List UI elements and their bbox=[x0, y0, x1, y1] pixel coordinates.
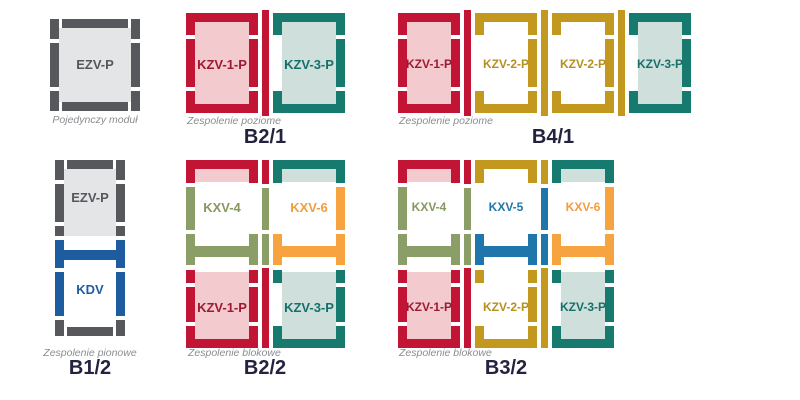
frame-stub bbox=[336, 270, 345, 283]
frame-stub bbox=[249, 169, 258, 183]
frame-stub bbox=[398, 169, 407, 183]
frame-stub bbox=[552, 169, 561, 183]
junction-bar bbox=[464, 188, 471, 230]
frame-bar bbox=[62, 19, 128, 28]
frame-stub bbox=[273, 22, 282, 35]
frame-stub bbox=[605, 169, 614, 183]
module-fill bbox=[195, 169, 249, 182]
frame-stub bbox=[249, 22, 258, 35]
module-label: KXV-6 bbox=[273, 200, 345, 215]
divider-bar bbox=[464, 268, 471, 348]
frame-stub bbox=[50, 19, 59, 39]
frame-stub bbox=[451, 270, 460, 283]
frame-stub bbox=[605, 270, 614, 283]
frame-stub bbox=[605, 91, 614, 104]
frame-stub bbox=[528, 91, 537, 104]
frame-bar bbox=[629, 104, 691, 113]
frame-stub bbox=[336, 91, 345, 104]
frame-stub bbox=[186, 22, 195, 35]
frame-stub bbox=[552, 326, 561, 339]
group-b22: KXV-4 KXV-6 KZV-1-P KZV-3-P bbox=[186, 160, 345, 348]
frame-stub bbox=[451, 91, 460, 104]
frame-stub bbox=[398, 326, 407, 339]
frame-bar bbox=[398, 104, 460, 113]
group-badge: B2/1 bbox=[215, 126, 315, 149]
connector-crossbar bbox=[552, 246, 614, 257]
junction-stub bbox=[541, 234, 548, 265]
module-label: KZV-2-P bbox=[471, 57, 541, 71]
module-label: KZV-3-P bbox=[625, 57, 695, 71]
group-badge: B1/2 bbox=[50, 357, 130, 380]
frame-stub bbox=[528, 270, 537, 283]
frame-bar bbox=[475, 160, 537, 169]
module-label: KXV-5 bbox=[475, 200, 537, 214]
frame-bar bbox=[186, 13, 258, 22]
frame-stub bbox=[131, 19, 140, 39]
module-label: KZV-1-P bbox=[394, 57, 464, 71]
junction-stub bbox=[262, 234, 269, 265]
group-b41: KZV-1-P KZV-2-P KZV-2-P KZV-3-P bbox=[398, 13, 691, 113]
frame-stub bbox=[116, 308, 125, 316]
frame-stub bbox=[273, 326, 282, 339]
group-caption: Pojedynczy moduł bbox=[30, 114, 160, 126]
frame-stub bbox=[336, 22, 345, 35]
frame-stub bbox=[475, 169, 484, 183]
frame-stub bbox=[336, 326, 345, 339]
module-label: KZV-1-P bbox=[186, 300, 258, 315]
frame-stub bbox=[451, 326, 460, 339]
divider-bar bbox=[618, 10, 625, 116]
connector-crossbar bbox=[273, 246, 345, 257]
module-fill bbox=[407, 169, 451, 182]
module-label: KXV-4 bbox=[398, 200, 460, 214]
group-b32: KXV-4 KXV-5 KXV-6 KZV-1 bbox=[398, 160, 614, 348]
group-badge: B3/2 bbox=[456, 357, 556, 380]
divider-bar bbox=[541, 10, 548, 116]
frame-stub bbox=[552, 22, 561, 35]
frame-stub bbox=[186, 270, 195, 283]
module-label: EZV-P bbox=[55, 190, 125, 205]
group-badge: B4/1 bbox=[503, 126, 603, 149]
connector-crossbar bbox=[398, 246, 460, 257]
flashing-combinations-diagram: EZV-P Pojedynczy moduł KZV-1-P KZV-3-P Z… bbox=[0, 0, 800, 400]
group-b21: KZV-1-P KZV-3-P bbox=[186, 13, 345, 113]
module-fill bbox=[282, 169, 336, 182]
frame-stub bbox=[528, 169, 537, 183]
module-label: KZV-1-P bbox=[394, 300, 464, 314]
frame-stub bbox=[55, 160, 64, 180]
frame-bar bbox=[186, 104, 258, 113]
junction-stub bbox=[464, 160, 471, 184]
frame-stub bbox=[398, 22, 407, 35]
frame-stub bbox=[629, 22, 638, 35]
divider-bar bbox=[541, 268, 548, 348]
frame-stub bbox=[186, 91, 195, 104]
frame-bar bbox=[273, 160, 345, 169]
group-b12: EZV-P KDV bbox=[55, 160, 125, 336]
frame-bar bbox=[629, 13, 691, 22]
frame-stub bbox=[116, 160, 125, 180]
connector-crossbar bbox=[186, 246, 258, 257]
divider-bar bbox=[464, 10, 471, 116]
module-label: KZV-2-P bbox=[548, 57, 618, 71]
frame-stub bbox=[475, 326, 484, 339]
frame-bar bbox=[475, 104, 537, 113]
frame-stub bbox=[186, 326, 195, 339]
frame-bar bbox=[552, 104, 614, 113]
module-label: KZV-3-P bbox=[273, 300, 345, 315]
frame-stub bbox=[55, 226, 64, 236]
module-label: KDV bbox=[55, 282, 125, 297]
frame-stub bbox=[186, 169, 195, 183]
frame-bar bbox=[475, 13, 537, 22]
frame-stub bbox=[55, 320, 64, 336]
module-label: EZV-P bbox=[50, 57, 140, 72]
frame-stub bbox=[552, 270, 561, 283]
divider-bar bbox=[262, 268, 269, 348]
frame-bar bbox=[552, 339, 614, 348]
module-label: KZV-3-P bbox=[548, 300, 618, 314]
frame-stub bbox=[116, 320, 125, 336]
module-label: KXV-4 bbox=[186, 200, 258, 215]
junction-bar bbox=[541, 188, 548, 230]
frame-stub bbox=[273, 169, 282, 183]
frame-stub bbox=[116, 226, 125, 236]
frame-bar bbox=[67, 327, 113, 336]
frame-stub bbox=[475, 91, 484, 104]
frame-stub bbox=[398, 270, 407, 283]
frame-stub bbox=[55, 308, 64, 316]
frame-stub bbox=[273, 91, 282, 104]
frame-stub bbox=[682, 22, 691, 35]
frame-stub bbox=[249, 91, 258, 104]
frame-stub bbox=[451, 169, 460, 183]
frame-stub bbox=[249, 326, 258, 339]
module-label: KZV-1-P bbox=[186, 57, 258, 72]
frame-stub bbox=[336, 169, 345, 183]
frame-stub bbox=[552, 91, 561, 104]
frame-stub bbox=[398, 91, 407, 104]
frame-stub bbox=[475, 22, 484, 35]
frame-stub bbox=[131, 91, 140, 111]
connector-crossbar bbox=[475, 246, 537, 257]
frame-bar bbox=[398, 160, 460, 169]
frame-bar bbox=[67, 160, 113, 169]
frame-stub bbox=[451, 22, 460, 35]
frame-stub bbox=[273, 270, 282, 283]
frame-stub bbox=[50, 91, 59, 111]
frame-stub bbox=[605, 22, 614, 35]
frame-stub bbox=[682, 91, 691, 104]
frame-bar bbox=[273, 339, 345, 348]
module-label: KXV-6 bbox=[552, 200, 614, 214]
group-badge: B2/2 bbox=[215, 357, 315, 380]
frame-bar bbox=[186, 160, 258, 169]
frame-stub bbox=[249, 270, 258, 283]
junction-bar bbox=[262, 188, 269, 230]
frame-bar bbox=[62, 102, 128, 111]
frame-stub bbox=[475, 270, 484, 283]
junction-stub bbox=[464, 234, 471, 265]
group-caption: Zespolenie poziome bbox=[399, 115, 493, 127]
divider-bar bbox=[262, 10, 269, 116]
frame-stub bbox=[528, 22, 537, 35]
module-label: KZV-2-P bbox=[471, 300, 541, 314]
group-single-module: EZV-P bbox=[50, 19, 140, 111]
frame-bar bbox=[398, 13, 460, 22]
frame-bar bbox=[552, 160, 614, 169]
junction-stub bbox=[541, 160, 548, 184]
frame-stub bbox=[528, 326, 537, 339]
frame-bar bbox=[273, 104, 345, 113]
frame-bar bbox=[273, 13, 345, 22]
frame-stub bbox=[605, 326, 614, 339]
connector-crossbar bbox=[55, 250, 125, 260]
frame-bar bbox=[552, 13, 614, 22]
module-label: KZV-3-P bbox=[273, 57, 345, 72]
frame-stub bbox=[629, 91, 638, 104]
junction-stub bbox=[262, 160, 269, 184]
module-fill bbox=[561, 169, 605, 182]
